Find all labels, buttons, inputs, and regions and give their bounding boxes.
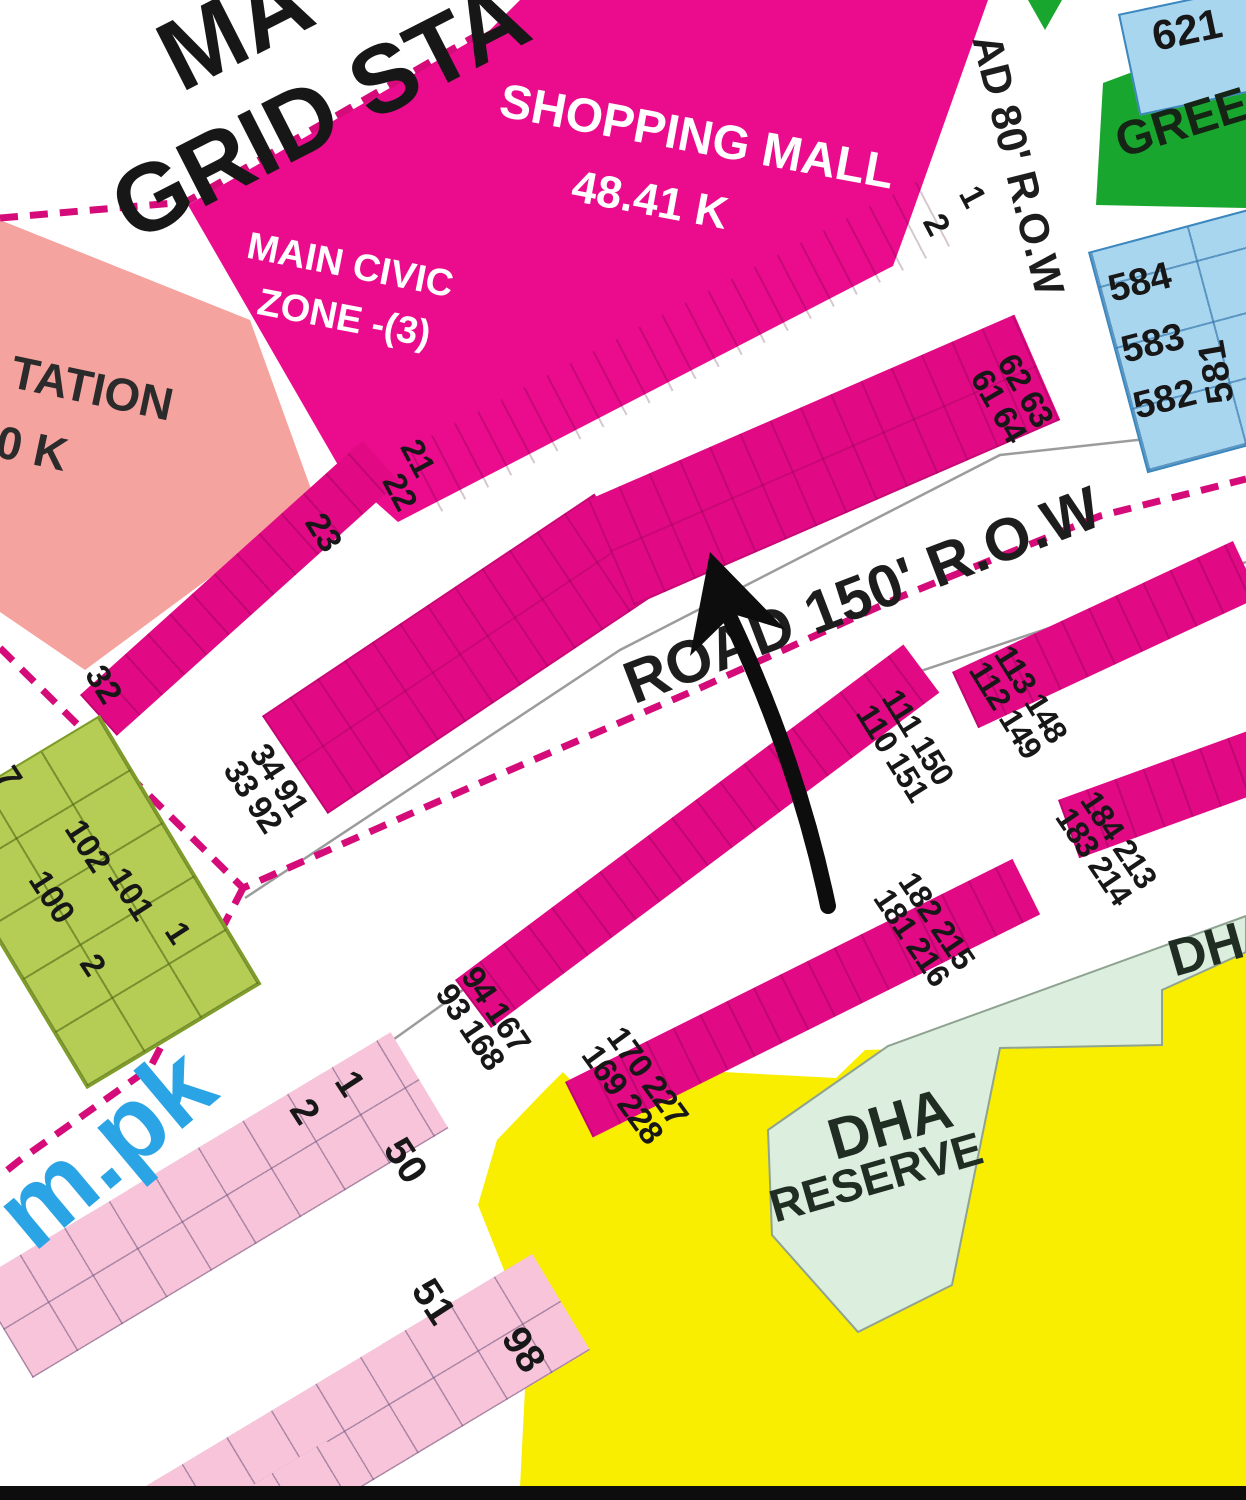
bottom-black-bar: [0, 1486, 1246, 1500]
dha-plot-map: MA GRID STA SHOPPING MALL 48.41 K MAIN C…: [0, 0, 1246, 1500]
